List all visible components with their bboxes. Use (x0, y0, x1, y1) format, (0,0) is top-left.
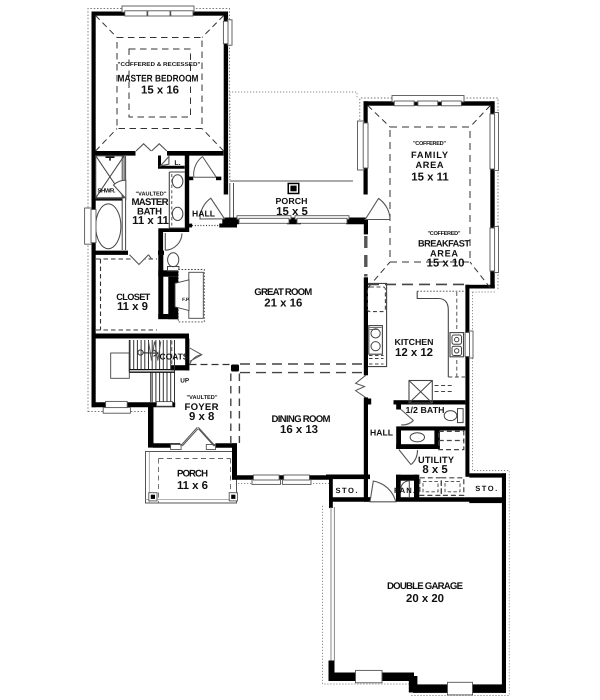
svg-text:DOUBLE GARAGE: DOUBLE GARAGE (387, 581, 464, 592)
svg-text:COATS: COATS (160, 351, 189, 361)
svg-text:SHWR.: SHWR. (98, 187, 116, 194)
svg-text:9 x 8: 9 x 8 (189, 411, 214, 423)
svg-text:1/2 BATH: 1/2 BATH (406, 405, 445, 415)
svg-text:AREA: AREA (416, 160, 444, 170)
svg-text:15 x 16: 15 x 16 (141, 85, 179, 97)
svg-text:HALL: HALL (370, 427, 393, 437)
svg-text:L.: L. (174, 160, 180, 167)
svg-text:20 x 20: 20 x 20 (406, 593, 444, 605)
svg-text:16 x 13: 16 x 13 (280, 424, 318, 436)
svg-text:"COFFERED": "COFFERED" (428, 231, 461, 237)
svg-text:15 x 11: 15 x 11 (411, 171, 449, 183)
svg-text:12 x 12: 12 x 12 (395, 347, 433, 359)
svg-text:15 x 5: 15 x 5 (276, 206, 308, 218)
svg-text:FAMILY: FAMILY (411, 150, 448, 160)
svg-text:KITCHEN: KITCHEN (395, 337, 434, 347)
svg-text:11 x 11: 11 x 11 (132, 215, 169, 227)
svg-text:F.P.: F.P. (182, 297, 190, 303)
svg-text:UP: UP (180, 378, 190, 385)
svg-text:PORCH: PORCH (276, 196, 308, 206)
svg-text:BREAKFAST: BREAKFAST (418, 238, 470, 248)
svg-text:GREAT ROOM: GREAT ROOM (254, 287, 312, 298)
svg-text:HALL: HALL (192, 209, 215, 219)
svg-text:21 x 16: 21 x 16 (264, 297, 302, 309)
svg-text:8 x 5: 8 x 5 (422, 464, 448, 476)
svg-text:11 x 6: 11 x 6 (177, 480, 208, 492)
svg-text:"COFFERED": "COFFERED" (413, 141, 446, 147)
svg-text:11 x 9: 11 x 9 (117, 301, 148, 313)
svg-text:"VAULTED": "VAULTED" (187, 395, 218, 401)
svg-text:15 x 10: 15 x 10 (426, 257, 464, 269)
svg-text:PORCH: PORCH (177, 468, 208, 479)
svg-text:"COFFERED & RECESSED": "COFFERED & RECESSED" (118, 62, 201, 68)
svg-text:MASTER BEDROOM: MASTER BEDROOM (118, 74, 199, 85)
